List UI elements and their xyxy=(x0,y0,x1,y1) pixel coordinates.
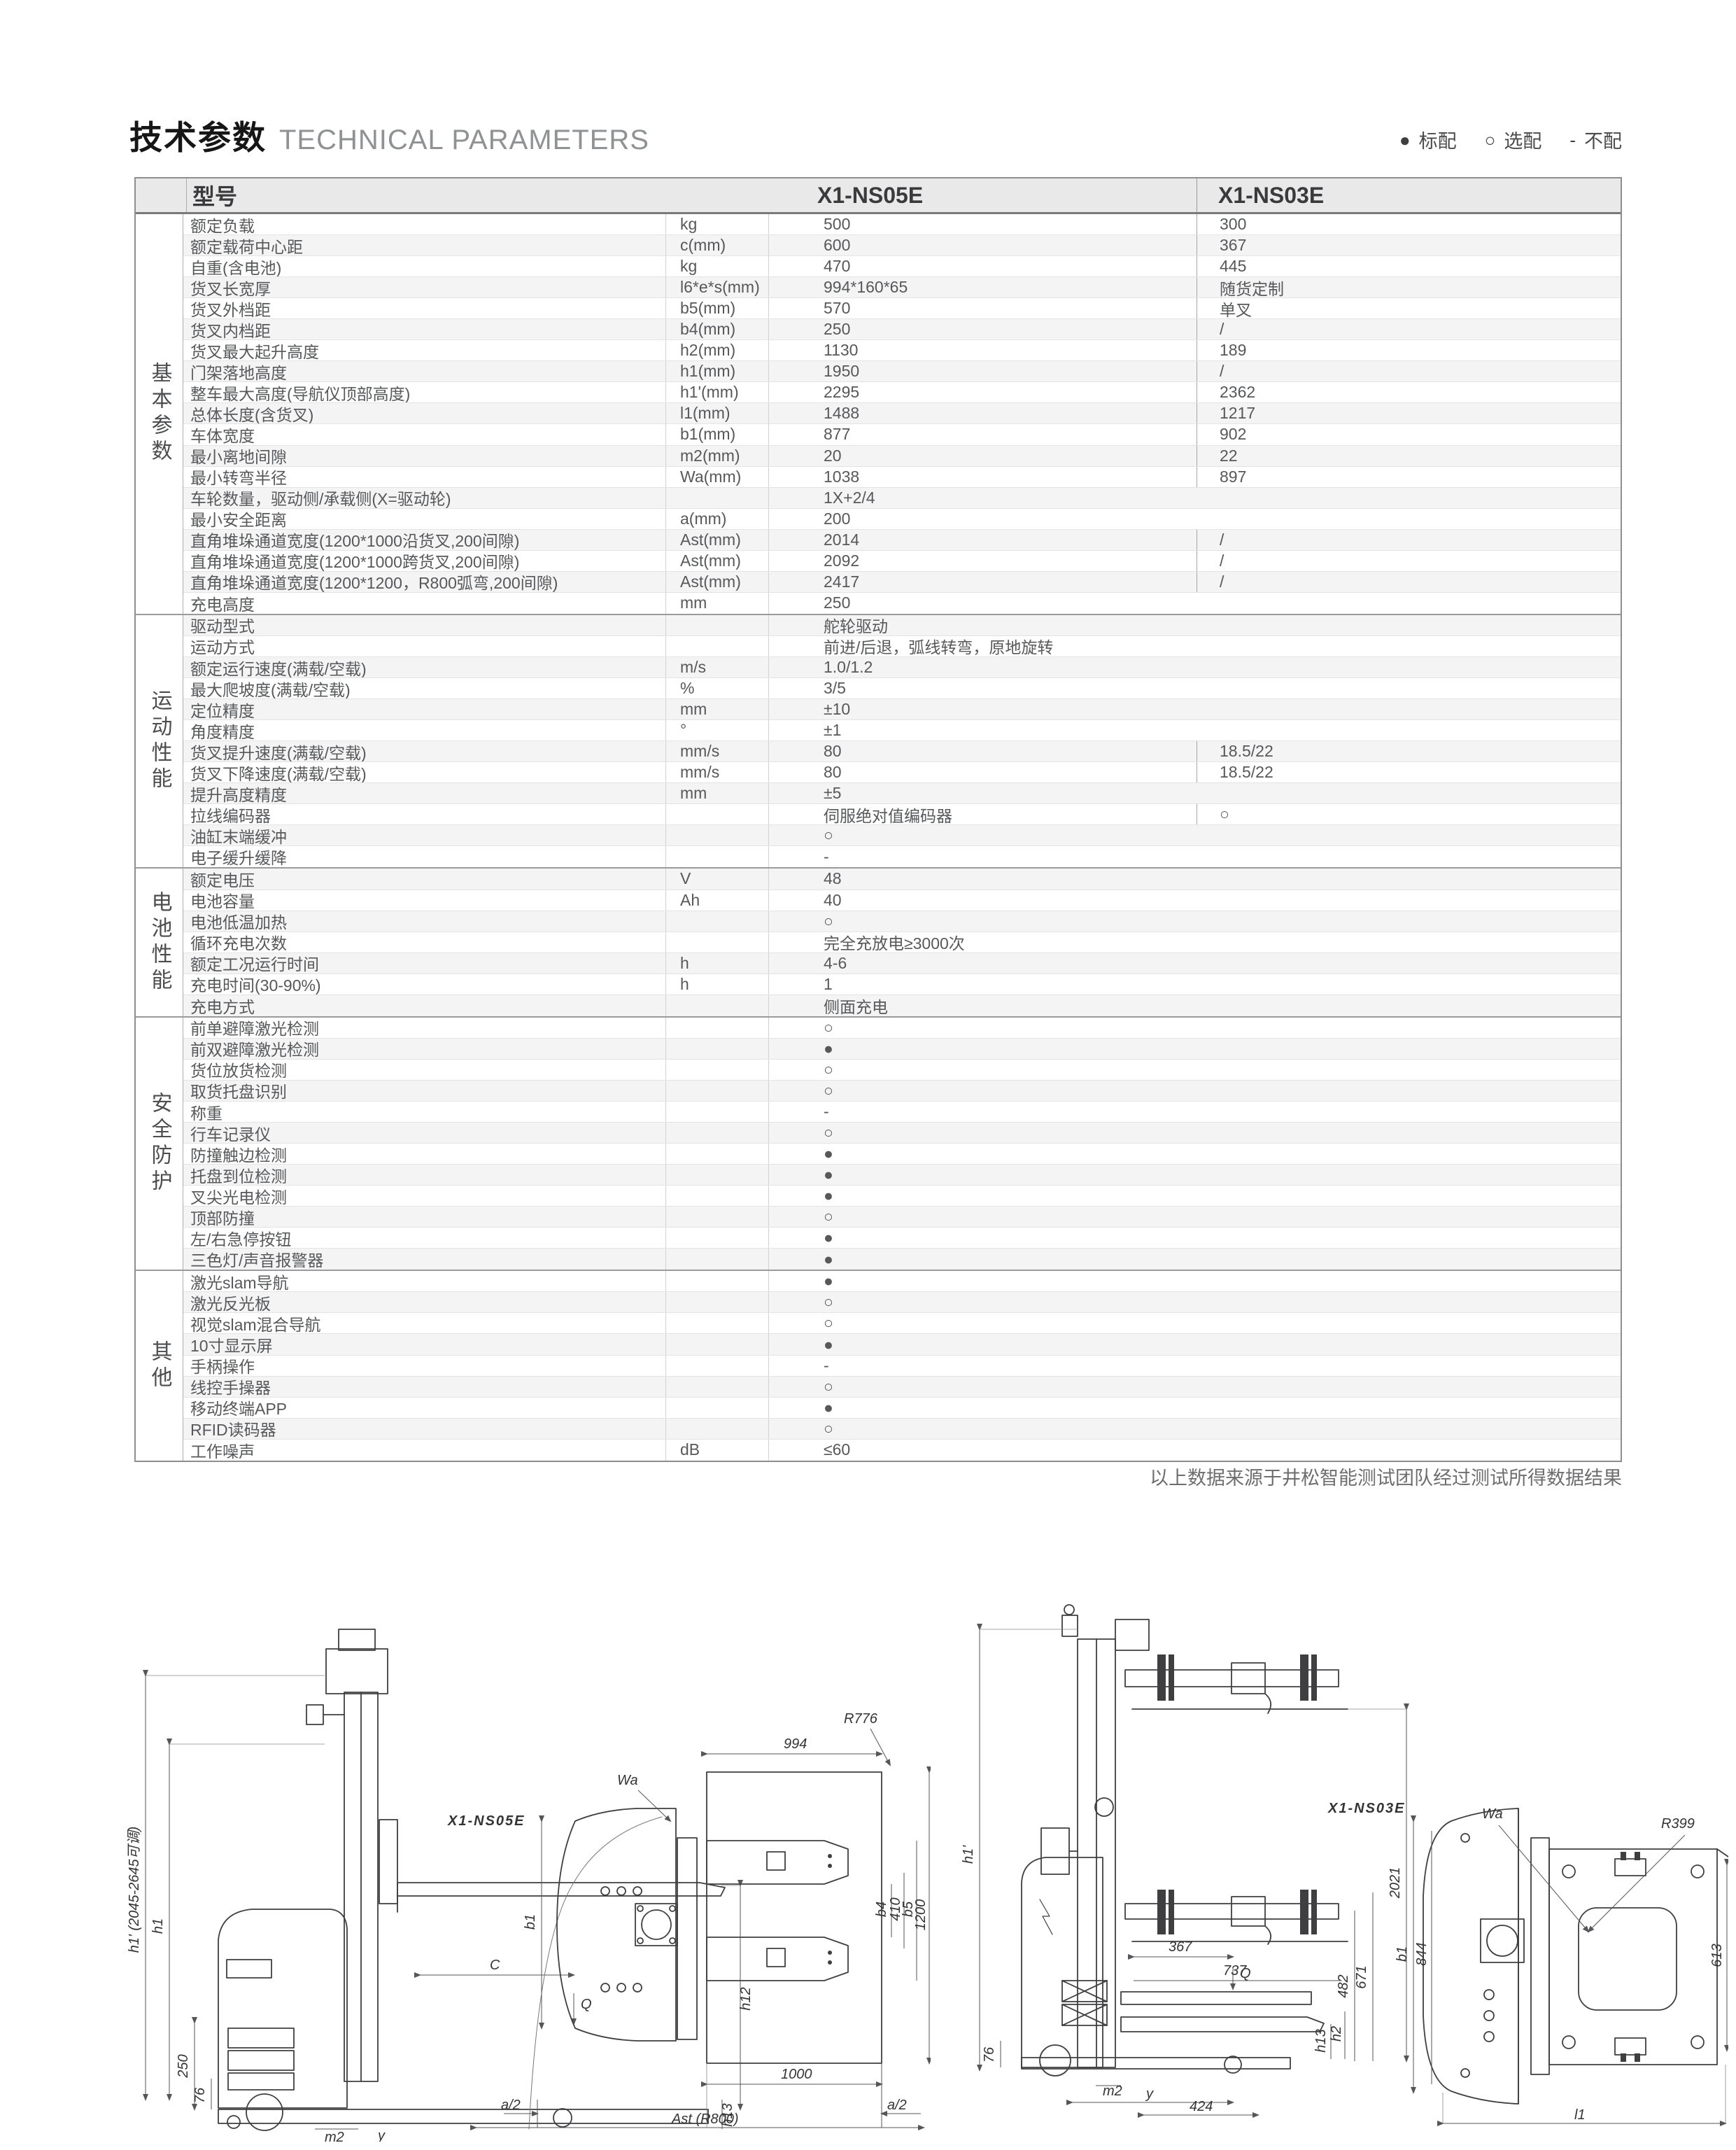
dim-label: h1' (2045-2645可调) xyxy=(127,1827,142,1953)
footnote: 以上数据来源于井松智能测试团队经过测试所得数据结果 xyxy=(129,1463,1622,1490)
section-category-label: 基本参数 xyxy=(144,362,175,465)
dim-label: a/2 xyxy=(887,2098,907,2113)
value-ns03e-cell: 367 xyxy=(1197,235,1621,255)
value-ns03e-cell xyxy=(1197,1440,1621,1461)
table-row: 额定载荷中心距 c(mm) 600 367 xyxy=(183,235,1621,256)
dim-label: h1 xyxy=(150,1918,166,1934)
table-section: 基本参数 额定负载 kg 500 300 额定载荷中心距 c(mm) 600 3… xyxy=(136,214,1621,614)
unit-cell xyxy=(665,1018,768,1038)
spec-table: 型号 X1-NS05E X1-NS03E 基本参数 额定负载 kg 500 30… xyxy=(134,177,1622,1462)
section-rows: 额定负载 kg 500 300 额定载荷中心距 c(mm) 600 367 自重… xyxy=(183,214,1621,614)
dim-label: m2 xyxy=(325,2130,344,2142)
value-ns03e-cell xyxy=(1197,1228,1621,1248)
table-header-row: 型号 X1-NS05E X1-NS03E xyxy=(136,178,1621,214)
value-ns05e-cell: 2092 xyxy=(768,551,1197,571)
param-name-cell: 货叉最大起升高度 xyxy=(183,340,665,360)
param-name-cell: 手柄操作 xyxy=(183,1356,665,1376)
table-row: 取货托盘识别 ○ xyxy=(183,1081,1621,1102)
value-ns05e-cell: ● xyxy=(768,1165,1197,1185)
param-name-cell: 充电方式 xyxy=(183,995,665,1016)
value-ns03e-cell xyxy=(1197,1039,1621,1059)
unit-cell: mm xyxy=(665,699,768,719)
unit-cell: V xyxy=(665,869,768,889)
value-ns05e-cell: 1130 xyxy=(768,340,1197,360)
value-ns05e-cell: 1038 xyxy=(768,467,1197,487)
param-name-cell: 额定运行速度(满载/空载) xyxy=(183,657,665,677)
value-ns05e-cell: 250 xyxy=(768,593,1197,614)
param-name-cell: 顶部防撞 xyxy=(183,1207,665,1227)
table-row: 最小安全距离 a(mm) 200 xyxy=(183,509,1621,530)
value-ns03e-cell xyxy=(1197,1102,1621,1122)
ns05e-dim-labels: h1' (2045-2645可调) h1 250 76 m2 y l1 C Q … xyxy=(127,1711,929,2142)
filled-circle-icon: ● xyxy=(1399,131,1411,149)
drawing-ns03e: X1-NS03E xyxy=(959,1603,1728,2149)
dim-label: m2 xyxy=(1103,2084,1122,2099)
table-row: 移动终端APP ● xyxy=(183,1398,1621,1419)
dim-label: 76 xyxy=(192,2087,208,2103)
value-ns05e-cell: 600 xyxy=(768,235,1197,255)
dim-label: 424 xyxy=(1190,2099,1213,2114)
param-name-cell: 直角堆垛通道宽度(1200*1200，R800弧弯,200间隙) xyxy=(183,572,665,592)
param-name-cell: 运动方式 xyxy=(183,636,665,656)
table-row: 运动方式 前进/后退，弧线转弯，原地旋转 xyxy=(183,636,1621,657)
value-ns05e-cell: 1X+2/4 xyxy=(768,488,1197,508)
param-name-cell: 最大爬坡度(满载/空载) xyxy=(183,678,665,698)
unit-cell: Ast(mm) xyxy=(665,572,768,592)
value-ns05e-cell: ±10 xyxy=(768,699,1197,719)
value-ns03e-cell xyxy=(1197,825,1621,845)
table-body: 基本参数 额定负载 kg 500 300 额定载荷中心距 c(mm) 600 3… xyxy=(136,214,1621,1461)
value-ns05e-cell: 470 xyxy=(768,256,1197,276)
table-row: 托盘到位检测 ● xyxy=(183,1165,1621,1186)
dim-label: 250 xyxy=(176,2054,191,2078)
param-name-cell: 车轮数量，驱动侧/承载侧(X=驱动轮) xyxy=(183,488,665,508)
table-row: 最小转弯半径 Wa(mm) 1038 897 xyxy=(183,467,1621,488)
table-row: 顶部防撞 ○ xyxy=(183,1207,1621,1228)
param-name-cell: 货位放货检测 xyxy=(183,1060,665,1080)
value-ns03e-cell: 902 xyxy=(1197,424,1621,444)
param-name-cell: 电子缓升缓降 xyxy=(183,846,665,867)
unit-cell: b5(mm) xyxy=(665,298,768,318)
param-name-cell: 额定电压 xyxy=(183,869,665,889)
value-ns05e-cell: ● xyxy=(768,1249,1197,1270)
param-name-cell: 最小转弯半径 xyxy=(183,467,665,487)
value-ns03e-cell xyxy=(1197,1186,1621,1206)
dim-label: 367 xyxy=(1169,1939,1192,1955)
value-ns03e-cell: / xyxy=(1197,361,1621,381)
dim-label: h2 xyxy=(1329,2026,1344,2042)
dim-label: a/2 xyxy=(501,2098,521,2113)
value-ns03e-cell xyxy=(1197,783,1621,803)
value-ns05e-cell: 994*160*65 xyxy=(768,277,1197,297)
table-row: 额定工况运行时间 h 4-6 xyxy=(183,953,1621,974)
value-ns05e-cell: 40 xyxy=(768,890,1197,911)
dim-label: 1000 xyxy=(781,2067,812,2082)
unit-cell xyxy=(665,1356,768,1376)
value-ns05e-cell: 2014 xyxy=(768,530,1197,550)
dim-label: Ast (R800) xyxy=(671,2112,739,2127)
unit-cell: mm/s xyxy=(665,741,768,761)
unit-cell: l1(mm) xyxy=(665,403,768,423)
param-name-cell: 定位精度 xyxy=(183,699,665,719)
table-row: 额定运行速度(满载/空载) m/s 1.0/1.2 xyxy=(183,657,1621,678)
table-row: 称重 - xyxy=(183,1102,1621,1123)
unit-cell: h1(mm) xyxy=(665,361,768,381)
unit-cell xyxy=(665,1398,768,1418)
value-ns03e-cell xyxy=(1197,1313,1621,1333)
value-ns05e-cell: 80 xyxy=(768,741,1197,761)
param-name-cell: 直角堆垛通道宽度(1200*1000跨货叉,200间隙) xyxy=(183,551,665,571)
param-name-cell: 自重(含电池) xyxy=(183,256,665,276)
dim-label: C xyxy=(490,1958,500,1973)
value-ns05e-cell: ● xyxy=(768,1039,1197,1059)
dim-label: h12 xyxy=(738,1987,754,2010)
dim-label: Q xyxy=(581,1997,592,2012)
dim-label: 1200 xyxy=(913,1899,929,1931)
table-row: 防撞触边检测 ● xyxy=(183,1144,1621,1165)
table-row: 角度精度 ° ±1 xyxy=(183,720,1621,741)
header-model-label: 型号 xyxy=(186,178,771,212)
table-section: 安全防护 前单避障激光检测 ○ 前双避障激光检测 ● 货位放货检测 ○ 取货托盘… xyxy=(136,1016,1621,1270)
unit-cell: a(mm) xyxy=(665,509,768,529)
dim-label: 613 xyxy=(1709,1944,1725,1967)
unit-cell xyxy=(665,1292,768,1312)
dim-label: 844 xyxy=(1414,1942,1430,1965)
dim-label: h13 xyxy=(1313,2029,1329,2052)
param-name-cell: 托盘到位检测 xyxy=(183,1165,665,1185)
value-ns03e-cell: 897 xyxy=(1197,467,1621,487)
section-category-label: 其他 xyxy=(144,1340,175,1392)
unit-cell xyxy=(665,636,768,656)
value-ns03e-cell xyxy=(1197,1249,1621,1270)
param-name-cell: 称重 xyxy=(183,1102,665,1122)
value-ns03e-cell xyxy=(1197,974,1621,995)
param-name-cell: 防撞触边检测 xyxy=(183,1144,665,1164)
unit-cell xyxy=(665,1144,768,1164)
value-ns03e-cell xyxy=(1197,932,1621,953)
value-ns03e-cell xyxy=(1197,678,1621,698)
param-name-cell: 电池低温加热 xyxy=(183,911,665,932)
param-name-cell: 充电高度 xyxy=(183,593,665,614)
value-ns03e-cell: / xyxy=(1197,551,1621,571)
unit-cell: kg xyxy=(665,256,768,276)
unit-cell: % xyxy=(665,678,768,698)
param-name-cell: 货叉下降速度(满载/空载) xyxy=(183,762,665,782)
value-ns03e-cell xyxy=(1197,1356,1621,1376)
section-category-cell: 基本参数 xyxy=(136,214,183,614)
value-ns03e-cell xyxy=(1197,1398,1621,1418)
param-name-cell: 行车记录仪 xyxy=(183,1123,665,1143)
table-row: 货位放货检测 ○ xyxy=(183,1060,1621,1081)
table-row: 最大爬坡度(满载/空载) % 3/5 xyxy=(183,678,1621,699)
unit-cell xyxy=(665,1249,768,1270)
unit-cell xyxy=(665,995,768,1016)
ns05e-top-dims xyxy=(476,1729,929,2128)
unit-cell: Ah xyxy=(665,890,768,911)
table-row: 货叉最大起升高度 h2(mm) 1130 189 xyxy=(183,340,1621,361)
drawing-model-label: X1-NS05E xyxy=(447,1813,525,1829)
dash-icon: - xyxy=(1569,131,1576,149)
value-ns05e-cell: ○ xyxy=(768,1313,1197,1333)
value-ns03e-cell: 18.5/22 xyxy=(1197,762,1621,782)
unit-cell xyxy=(665,488,768,508)
value-ns03e-cell xyxy=(1197,1334,1621,1354)
dim-label: R776 xyxy=(844,1711,878,1727)
value-ns05e-cell: - xyxy=(768,1102,1197,1122)
param-name-cell: 激光slam导航 xyxy=(183,1271,665,1291)
param-name-cell: 前单避障激光检测 xyxy=(183,1018,665,1038)
page-title: 技术参数TECHNICAL PARAMETERS xyxy=(129,111,649,159)
value-ns03e-cell xyxy=(1197,1081,1621,1101)
legend-optional: ○选配 xyxy=(1485,126,1542,153)
value-ns03e-cell: 22 xyxy=(1197,446,1621,466)
value-ns05e-cell: ● xyxy=(768,1228,1197,1248)
value-ns03e-cell xyxy=(1197,509,1621,529)
header-model-ns03e: X1-NS03E xyxy=(1197,178,1621,212)
drawing-ns05e: X1-NS05E xyxy=(84,1610,931,2142)
table-row: 电池容量 Ah 40 xyxy=(183,890,1621,911)
table-row: 油缸末端缓冲 ○ xyxy=(183,825,1621,846)
value-ns03e-cell xyxy=(1197,1377,1621,1397)
value-ns03e-cell xyxy=(1197,1144,1621,1164)
table-row: 手柄操作 - xyxy=(183,1356,1621,1377)
value-ns03e-cell: / xyxy=(1197,572,1621,592)
value-ns05e-cell: 舵轮驱动 xyxy=(768,615,1197,635)
dim-label: h1' xyxy=(961,1845,976,1864)
value-ns03e-cell: 1217 xyxy=(1197,403,1621,423)
param-name-cell: 货叉提升速度(满载/空载) xyxy=(183,741,665,761)
value-ns05e-cell: 完全充放电≥3000次 xyxy=(768,932,1197,953)
unit-cell xyxy=(665,825,768,845)
dim-label: 2021 xyxy=(1388,1867,1403,1899)
value-ns05e-cell: ○ xyxy=(768,825,1197,845)
table-row: 工作噪声 dB ≤60 xyxy=(183,1440,1621,1461)
table-row: 三色灯/声音报警器 ● xyxy=(183,1249,1621,1270)
value-ns05e-cell: - xyxy=(768,1356,1197,1376)
dim-label: y xyxy=(1145,2086,1154,2102)
table-row: 驱动型式 舵轮驱动 xyxy=(183,615,1621,636)
param-name-cell: 车体宽度 xyxy=(183,424,665,444)
table-row: 左/右急停按钮 ● xyxy=(183,1228,1621,1249)
ns03e-top-view xyxy=(1423,1808,1728,2104)
value-ns05e-cell: 2417 xyxy=(768,572,1197,592)
dim-label: 671 xyxy=(1354,1965,1369,1988)
value-ns05e-cell: ○ xyxy=(768,1060,1197,1080)
dim-label: R399 xyxy=(1661,1816,1695,1832)
table-row: 货叉提升速度(满载/空载) mm/s 80 18.5/22 xyxy=(183,741,1621,762)
value-ns05e-cell: 877 xyxy=(768,424,1197,444)
table-section: 其他 激光slam导航 ● 激光反光板 ○ 视觉slam混合导航 ○ 10寸显示… xyxy=(136,1270,1621,1460)
table-row: 激光反光板 ○ xyxy=(183,1292,1621,1313)
value-ns03e-cell xyxy=(1197,995,1621,1016)
dim-label: 994 xyxy=(784,1736,807,1752)
unit-cell: h1'(mm) xyxy=(665,382,768,402)
param-name-cell: 取货托盘识别 xyxy=(183,1081,665,1101)
param-name-cell: 货叉长宽厚 xyxy=(183,277,665,297)
value-ns05e-cell: 1488 xyxy=(768,403,1197,423)
value-ns05e-cell: 4-6 xyxy=(768,953,1197,974)
table-row: 额定电压 V 48 xyxy=(183,869,1621,890)
section-category-label: 安全防护 xyxy=(144,1092,175,1195)
legend-standard: ●标配 xyxy=(1399,126,1457,153)
legend-none: -不配 xyxy=(1569,126,1622,153)
value-ns03e-cell xyxy=(1197,846,1621,867)
param-name-cell: 激光反光板 xyxy=(183,1292,665,1312)
table-row: 货叉外档距 b5(mm) 570 单叉 xyxy=(183,298,1621,319)
param-name-cell: 左/右急停按钮 xyxy=(183,1228,665,1248)
table-row: 定位精度 mm ±10 xyxy=(183,699,1621,720)
legend: ●标配 ○选配 -不配 xyxy=(1399,126,1622,159)
table-row: 10寸显示屏 ● xyxy=(183,1334,1621,1355)
value-ns05e-cell: ● xyxy=(768,1398,1197,1418)
dim-label: 737 xyxy=(1223,1963,1247,1979)
dim-label: Wa xyxy=(617,1773,638,1788)
unit-cell xyxy=(665,1039,768,1059)
value-ns05e-cell: 1950 xyxy=(768,361,1197,381)
value-ns05e-cell: 伺服绝对值编码器 xyxy=(768,804,1197,824)
param-name-cell: 电池容量 xyxy=(183,890,665,911)
table-row: RFID读码器 ○ xyxy=(183,1419,1621,1440)
value-ns05e-cell: 1 xyxy=(768,974,1197,995)
value-ns03e-cell xyxy=(1197,657,1621,677)
table-row: 充电方式 侧面充电 xyxy=(183,995,1621,1016)
ns05e-top-view xyxy=(529,1772,882,2129)
table-row: 激光slam导航 ● xyxy=(183,1271,1621,1292)
value-ns03e-cell xyxy=(1197,636,1621,656)
value-ns03e-cell xyxy=(1197,699,1621,719)
table-row: 充电时间(30-90%) h 1 xyxy=(183,974,1621,995)
table-section: 运动性能 驱动型式 舵轮驱动 运动方式 前进/后退，弧线转弯，原地旋转 额定运行… xyxy=(136,614,1621,868)
value-ns05e-cell: 250 xyxy=(768,319,1197,339)
param-name-cell: 三色灯/声音报警器 xyxy=(183,1249,665,1270)
unit-cell: h2(mm) xyxy=(665,340,768,360)
value-ns03e-cell xyxy=(1197,615,1621,635)
value-ns05e-cell: ● xyxy=(768,1334,1197,1354)
value-ns03e-cell: 300 xyxy=(1197,214,1621,234)
table-row: 电池低温加热 ○ xyxy=(183,911,1621,932)
param-name-cell: 货叉内档距 xyxy=(183,319,665,339)
param-name-cell: 循环充电次数 xyxy=(183,932,665,953)
drawing-model-label: X1-NS03E xyxy=(1327,1801,1406,1816)
param-name-cell: 直角堆垛通道宽度(1200*1000沿货叉,200间隙) xyxy=(183,530,665,550)
unit-cell: mm xyxy=(665,783,768,803)
table-row: 前双避障激光检测 ● xyxy=(183,1039,1621,1060)
value-ns03e-cell xyxy=(1197,911,1621,932)
table-row: 直角堆垛通道宽度(1200*1200，R800弧弯,200间隙) Ast(mm)… xyxy=(183,572,1621,593)
unit-cell: dB xyxy=(665,1440,768,1461)
unit-cell xyxy=(665,932,768,953)
param-name-cell: 额定工况运行时间 xyxy=(183,953,665,974)
unit-cell xyxy=(665,1419,768,1439)
value-ns03e-cell xyxy=(1197,953,1621,974)
header-model-ns05e: X1-NS05E xyxy=(771,178,1197,212)
ns05e-side-view xyxy=(218,1629,725,2130)
value-ns03e-cell: / xyxy=(1197,319,1621,339)
section-rows: 驱动型式 舵轮驱动 运动方式 前进/后退，弧线转弯，原地旋转 额定运行速度(满载… xyxy=(183,615,1621,868)
value-ns05e-cell: 570 xyxy=(768,298,1197,318)
value-ns03e-cell xyxy=(1197,1419,1621,1439)
value-ns03e-cell: 随货定制 xyxy=(1197,277,1621,297)
dim-label: 482 xyxy=(1336,1974,1351,1997)
section-rows: 前单避障激光检测 ○ 前双避障激光检测 ● 货位放货检测 ○ 取货托盘识别 ○ … xyxy=(183,1018,1621,1270)
value-ns05e-cell: ○ xyxy=(768,1081,1197,1101)
unit-cell xyxy=(665,1186,768,1206)
value-ns03e-cell: 18.5/22 xyxy=(1197,741,1621,761)
param-name-cell: 门架落地高度 xyxy=(183,361,665,381)
value-ns03e-cell xyxy=(1197,1060,1621,1080)
unit-cell: b4(mm) xyxy=(665,319,768,339)
value-ns03e-cell xyxy=(1197,1292,1621,1312)
table-row: 货叉长宽厚 l6*e*s(mm) 994*160*65 随货定制 xyxy=(183,277,1621,298)
table-row: 循环充电次数 完全充放电≥3000次 xyxy=(183,932,1621,953)
hollow-circle-icon: ○ xyxy=(1485,131,1496,149)
value-ns03e-cell xyxy=(1197,1123,1621,1143)
param-name-cell: 前双避障激光检测 xyxy=(183,1039,665,1059)
table-row: 叉尖光电检测 ● xyxy=(183,1186,1621,1207)
value-ns05e-cell: 48 xyxy=(768,869,1197,889)
param-name-cell: 油缸末端缓冲 xyxy=(183,825,665,845)
value-ns03e-cell: ○ xyxy=(1197,804,1621,824)
unit-cell xyxy=(665,615,768,635)
unit-cell xyxy=(665,1207,768,1227)
value-ns03e-cell: / xyxy=(1197,530,1621,550)
unit-cell: mm xyxy=(665,593,768,614)
value-ns05e-cell: ● xyxy=(768,1271,1197,1291)
value-ns05e-cell: 200 xyxy=(768,509,1197,529)
section-category-label: 运动性能 xyxy=(144,689,175,793)
table-section: 电池性能 额定电压 V 48 电池容量 Ah 40 电池低温加热 ○ 循环充电次… xyxy=(136,867,1621,1016)
param-name-cell: 工作噪声 xyxy=(183,1440,665,1461)
table-row: 车轮数量，驱动侧/承载侧(X=驱动轮) 1X+2/4 xyxy=(183,488,1621,509)
table-row: 视觉slam混合导航 ○ xyxy=(183,1313,1621,1334)
value-ns03e-cell xyxy=(1197,720,1621,740)
value-ns03e-cell xyxy=(1197,890,1621,911)
legend-optional-label: 选配 xyxy=(1504,126,1541,153)
value-ns03e-cell xyxy=(1197,1207,1621,1227)
param-name-cell: 线控手操器 xyxy=(183,1377,665,1397)
param-name-cell: 驱动型式 xyxy=(183,615,665,635)
table-row: 充电高度 mm 250 xyxy=(183,593,1621,614)
value-ns05e-cell: ○ xyxy=(768,911,1197,932)
unit-cell xyxy=(665,1313,768,1333)
table-row: 直角堆垛通道宽度(1200*1000沿货叉,200间隙) Ast(mm) 201… xyxy=(183,530,1621,551)
dim-label: b1 xyxy=(1395,1946,1410,1962)
title-zh: 技术参数 xyxy=(129,119,267,156)
table-row: 总体长度(含货叉) l1(mm) 1488 1217 xyxy=(183,403,1621,424)
ns05e-side-dims xyxy=(146,1675,740,2142)
unit-cell: mm/s xyxy=(665,762,768,782)
unit-cell: l6*e*s(mm) xyxy=(665,277,768,297)
value-ns03e-cell xyxy=(1197,1018,1621,1038)
param-name-cell: 视觉slam混合导航 xyxy=(183,1313,665,1333)
unit-cell: h xyxy=(665,953,768,974)
value-ns03e-cell xyxy=(1197,488,1621,508)
section-category-cell: 其他 xyxy=(136,1271,183,1460)
value-ns03e-cell xyxy=(1197,869,1621,889)
param-name-cell: 总体长度(含货叉) xyxy=(183,403,665,423)
dim-label: 76 xyxy=(982,2046,997,2063)
unit-cell: Ast(mm) xyxy=(665,551,768,571)
section-category-cell: 运动性能 xyxy=(136,615,183,868)
unit-cell xyxy=(665,1123,768,1143)
unit-cell xyxy=(665,1060,768,1080)
value-ns03e-cell: 2362 xyxy=(1197,382,1621,402)
table-row: 车体宽度 b1(mm) 877 902 xyxy=(183,424,1621,445)
value-ns03e-cell xyxy=(1197,1271,1621,1291)
unit-cell: Ast(mm) xyxy=(665,530,768,550)
unit-cell xyxy=(665,911,768,932)
unit-cell xyxy=(665,1377,768,1397)
